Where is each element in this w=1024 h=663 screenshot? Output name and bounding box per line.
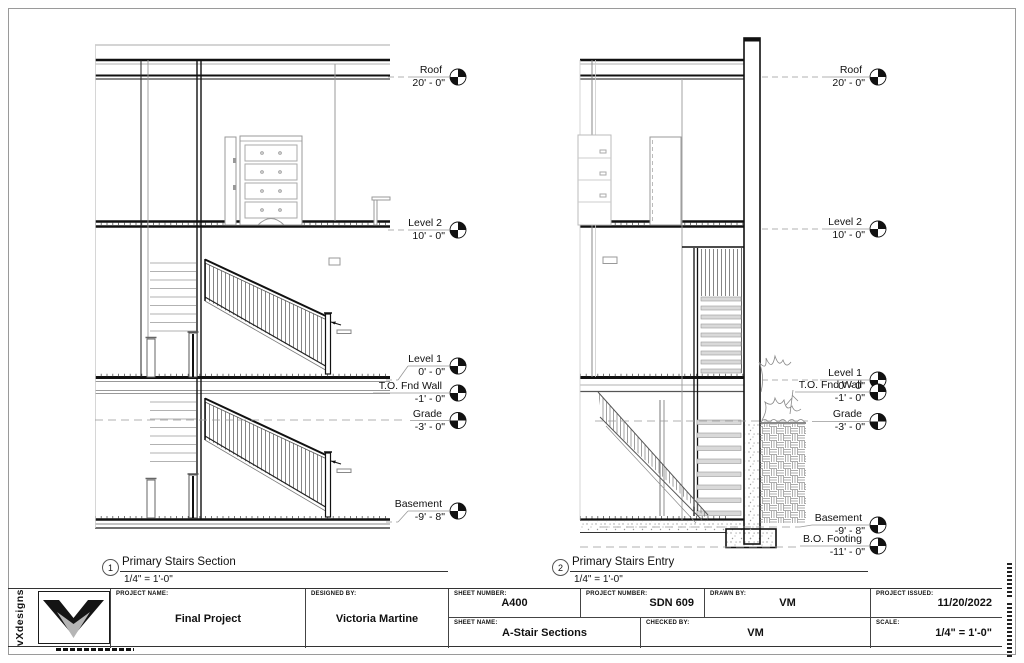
project-number-value: SDN 609	[581, 589, 704, 617]
project-issued-value: 11/20/2022	[871, 589, 1002, 617]
level-head-icon	[870, 517, 886, 533]
level-elevation: -1' - 0"	[799, 392, 866, 405]
level-elevation: 20' - 0"	[412, 77, 446, 90]
level-name: Grade	[833, 408, 866, 421]
drawing-sheet: Roof 20' - 0" Level 2 10' - 0" Level 1 0…	[0, 0, 1024, 663]
section-scale: 1/4" = 1'-0"	[124, 574, 173, 585]
level-name: B.O. Footing	[803, 533, 866, 546]
level-label-level1: Level 1 0' - 0"	[408, 353, 446, 378]
level-head-icon	[450, 358, 466, 374]
level-name: Level 2	[828, 216, 866, 229]
level-head-icon	[870, 69, 886, 85]
project-number-cell: PROJECT NUMBER: SDN 609	[580, 589, 704, 618]
sheet-name-cell: SHEET NAME: A-Stair Sections	[448, 618, 640, 648]
level-elevation: 0' - 0"	[408, 366, 446, 379]
logo-tagline-micro-text	[56, 648, 134, 651]
project-name-cell: PROJECT NAME: Final Project	[110, 589, 305, 648]
title-block: PROJECT NAME: Final Project DESIGNED BY:…	[8, 588, 1002, 647]
level-name: T.O. Fnd Wall	[799, 379, 866, 392]
level-head-icon	[450, 385, 466, 401]
level-head-icon	[870, 221, 886, 237]
section-title: Primary Stairs Section	[122, 556, 236, 568]
left-section-drawing	[95, 45, 390, 528]
scale-cell: SCALE: 1/4" = 1'-0"	[870, 618, 1002, 648]
level-name: Roof	[412, 64, 446, 77]
level-label-level2: Level 2 10' - 0"	[828, 216, 866, 241]
designed-by-cell: DESIGNED BY: Victoria Martine	[305, 589, 448, 648]
level-label-grade: Grade -3' - 0"	[833, 408, 866, 433]
level-elevation: -1' - 0"	[379, 393, 446, 406]
level-elevation: -3' - 0"	[413, 421, 446, 434]
dresser-drawing	[225, 136, 302, 225]
drawn-by-value: VM	[705, 589, 870, 617]
sheet-edge-micro-text	[1007, 561, 1012, 597]
section-scale: 1/4" = 1'-0"	[574, 574, 623, 585]
drawn-by-cell: DRAWN BY: VM	[704, 589, 870, 618]
level-label-bo-footing: B.O. Footing -11' - 0"	[803, 533, 866, 558]
sheet-number-cell: SHEET NUMBER: A400	[448, 589, 580, 618]
level-name: Basement	[815, 512, 866, 525]
section-number-bubble: 2	[552, 559, 569, 576]
level-elevation: -3' - 0"	[833, 421, 866, 434]
level-head-icon	[870, 414, 886, 430]
level-name: T.O. Fnd Wall	[379, 380, 446, 393]
level-label-roof: Roof 20' - 0"	[832, 64, 866, 89]
level-name: Level 1	[828, 367, 866, 380]
level-head-icon	[450, 503, 466, 519]
level-label-level2: Level 2 10' - 0"	[408, 217, 446, 242]
level-elevation: 10' - 0"	[408, 230, 446, 243]
level-label-basement: Basement -9' - 8"	[395, 498, 446, 523]
level-label-roof: Roof 20' - 0"	[412, 64, 446, 89]
level-label-to-fnd-wall: T.O. Fnd Wall -1' - 0"	[799, 379, 866, 404]
level-name: Level 2	[408, 217, 446, 230]
right-section-drawing	[578, 38, 806, 548]
sheet-edge-micro-text	[1007, 603, 1012, 657]
level-head-icon	[450, 69, 466, 85]
checked-by-cell: CHECKED BY: VM	[640, 618, 870, 648]
level-label-to-fnd-wall: T.O. Fnd Wall -1' - 0"	[379, 380, 446, 405]
level-label-grade: Grade -3' - 0"	[413, 408, 446, 433]
project-issued-cell: PROJECT ISSUED: 11/20/2022	[870, 589, 1002, 618]
section-title: Primary Stairs Entry	[572, 556, 674, 568]
level-name: Roof	[832, 64, 866, 77]
designed-by-value: Victoria Martine	[306, 589, 448, 648]
sheet-number-value: A400	[449, 589, 580, 617]
level-elevation: -11' - 0"	[803, 546, 866, 559]
level-name: Level 1	[408, 353, 446, 366]
section-number-bubble: 1	[102, 559, 119, 576]
level-head-icon	[450, 413, 466, 429]
level-name: Basement	[395, 498, 446, 511]
level-head-icon	[870, 384, 886, 400]
checked-by-value: VM	[641, 618, 870, 648]
project-name-value: Final Project	[111, 589, 305, 648]
level-head-icon	[450, 222, 466, 238]
level-elevation: 10' - 0"	[828, 229, 866, 242]
level-head-icon	[870, 538, 886, 554]
level-elevation: -9' - 8"	[395, 511, 446, 524]
level-elevation: 20' - 0"	[832, 77, 866, 90]
sheet-name-value: A-Stair Sections	[449, 618, 640, 648]
level-name: Grade	[413, 408, 446, 421]
scale-value: 1/4" = 1'-0"	[871, 618, 1002, 648]
